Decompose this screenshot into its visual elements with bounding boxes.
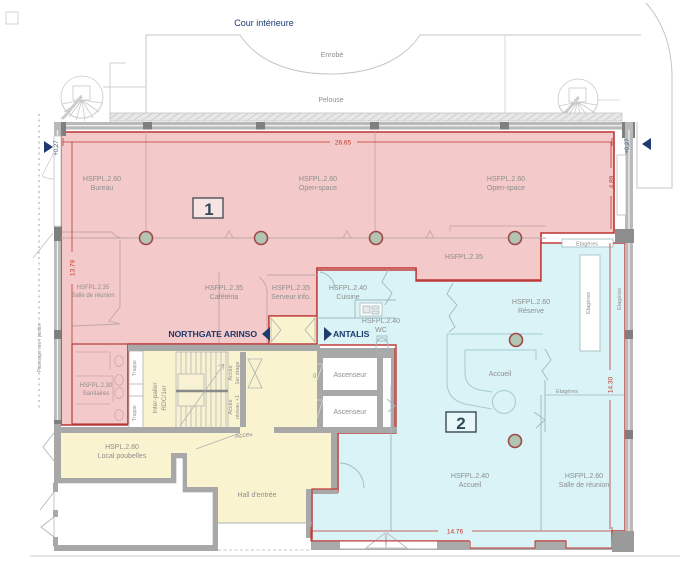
svg-text:1er étage: 1er étage — [235, 361, 241, 384]
svg-text:Hall d'entrée: Hall d'entrée — [237, 492, 276, 499]
svg-text:+0,27: +0,27 — [54, 140, 60, 156]
svg-text:Ascenseur: Ascenseur — [333, 372, 367, 379]
svg-text:Ascenseur: Ascenseur — [333, 409, 367, 416]
svg-text:Local poubelles: Local poubelles — [98, 453, 147, 460]
svg-text:HSFPL.2.60: HSFPL.2.60 — [487, 176, 525, 183]
svg-text:14.76: 14.76 — [447, 529, 464, 536]
svg-text:RDC/1er: RDC/1er — [161, 385, 168, 411]
svg-text:Sanitaires: Sanitaires — [83, 391, 110, 397]
svg-text:HSFPL.2.60: HSFPL.2.60 — [83, 176, 121, 183]
svg-text:HSPL.2.80: HSPL.2.80 — [105, 444, 139, 451]
svg-text:HSFPL.2.30: HSFPL.2.30 — [80, 383, 113, 389]
svg-text:Trappe: Trappe — [132, 405, 138, 421]
svg-text:2: 2 — [456, 414, 465, 433]
svg-text:HSFPL.2.35: HSFPL.2.35 — [205, 285, 243, 292]
svg-text:HSFPL.2.35: HSFPL.2.35 — [272, 285, 310, 292]
svg-text:Cour intérieure: Cour intérieure — [234, 18, 294, 28]
svg-text:Cafétéria: Cafétéria — [210, 294, 239, 301]
svg-text:HSFPL.2.40: HSFPL.2.40 — [451, 473, 489, 480]
svg-text:Accueil: Accueil — [459, 482, 482, 489]
svg-text:Open-space: Open-space — [299, 185, 337, 192]
svg-text:Bureau: Bureau — [91, 185, 114, 192]
svg-text:Salle de réunion: Salle de réunion — [559, 482, 610, 489]
svg-text:1: 1 — [204, 200, 213, 219]
svg-text:ANTALIS: ANTALIS — [333, 329, 370, 339]
svg-text:Etagères: Etagères — [556, 389, 578, 395]
svg-text:HSFPL.2.60: HSFPL.2.60 — [565, 473, 603, 480]
svg-text:Etagères: Etagères — [586, 292, 592, 314]
svg-text:Pelouse: Pelouse — [318, 97, 343, 104]
svg-text:Etagères: Etagères — [617, 288, 623, 310]
svg-text:HSFPL.2,35: HSFPL.2,35 — [77, 285, 110, 291]
svg-text:WC: WC — [375, 327, 387, 334]
svg-text:Open-space: Open-space — [487, 185, 525, 192]
svg-text:Salle de réunion: Salle de réunion — [71, 293, 114, 299]
svg-text:26.65: 26.65 — [335, 140, 352, 147]
svg-text:Trappe: Trappe — [132, 360, 138, 376]
svg-text:Enrobé: Enrobé — [321, 52, 344, 59]
svg-text:Serveur info.: Serveur info. — [271, 294, 311, 301]
svg-text:Accès: Accès — [228, 399, 234, 414]
svg-text:+0,27: +0,27 — [625, 138, 631, 154]
svg-text:13.79: 13.79 — [70, 259, 77, 276]
svg-text:4.89: 4.89 — [609, 175, 616, 188]
svg-text:NORTHGATE ARINSO: NORTHGATE ARINSO — [168, 329, 257, 339]
svg-text:Inter-palier: Inter-palier — [152, 382, 159, 414]
svg-text:HSFPL.2.60: HSFPL.2.60 — [512, 299, 550, 306]
svg-text:Passage rue / jardin: Passage rue / jardin — [37, 324, 43, 373]
svg-text:HSFPL.2.40: HSFPL.2.40 — [362, 318, 400, 325]
svg-text:Accueil: Accueil — [489, 371, 512, 378]
svg-text:Accès: Accès — [228, 365, 234, 380]
svg-text:niveau +1: niveau +1 — [235, 395, 241, 419]
svg-text:14.30: 14.30 — [608, 376, 615, 393]
svg-text:HSFPL.2.60: HSFPL.2.60 — [299, 176, 337, 183]
svg-text:HSFPL.2.35: HSFPL.2.35 — [445, 254, 483, 261]
svg-text:Réserve: Réserve — [518, 308, 544, 315]
svg-text:Etagères: Etagères — [576, 242, 598, 248]
